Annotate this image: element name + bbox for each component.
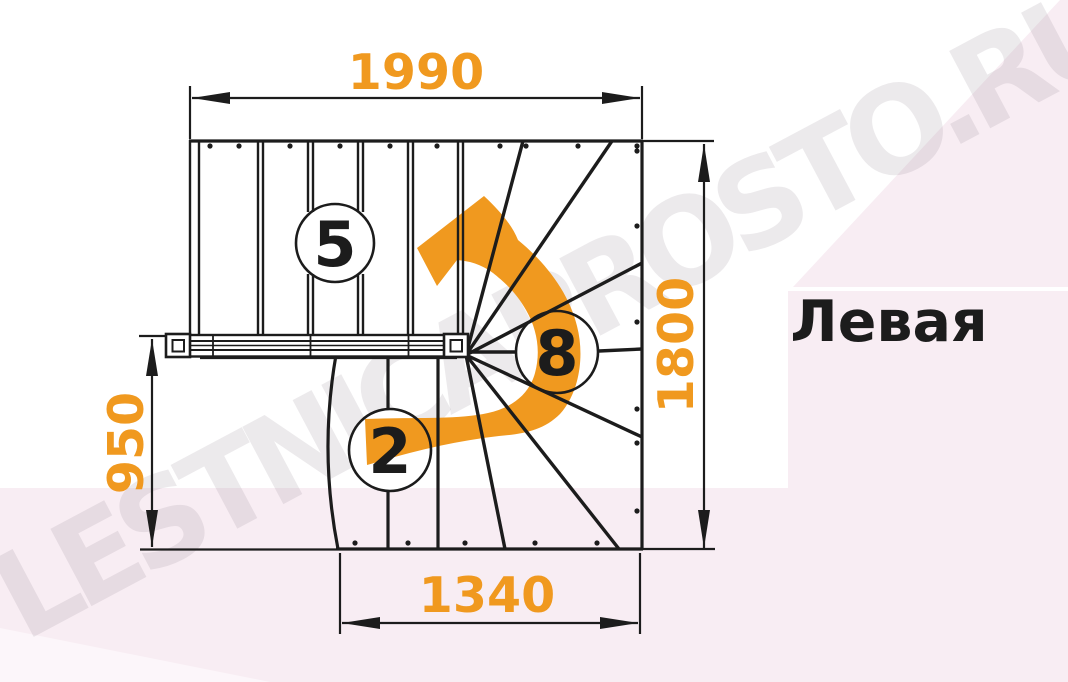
step-badge-lower-flight: 2 <box>368 415 411 488</box>
dimension-bottom-value: 1340 <box>419 567 555 624</box>
step-badge-upper-flight: 5 <box>313 208 356 281</box>
dimension-top: 1990 <box>190 44 642 139</box>
newel-post <box>444 334 468 357</box>
step-badge-winders: 8 <box>535 317 578 390</box>
plan-canvas: LESTNICAPROSTO.RU <box>0 0 1068 682</box>
staircase-plan-drawing: LESTNICAPROSTO.RU <box>0 0 1068 682</box>
dimension-top-value: 1990 <box>348 44 484 101</box>
orientation-label: Левая <box>790 289 987 355</box>
dimension-left-value: 950 <box>98 392 155 494</box>
newel-post <box>166 334 190 357</box>
dimension-right-value: 1800 <box>648 277 705 413</box>
